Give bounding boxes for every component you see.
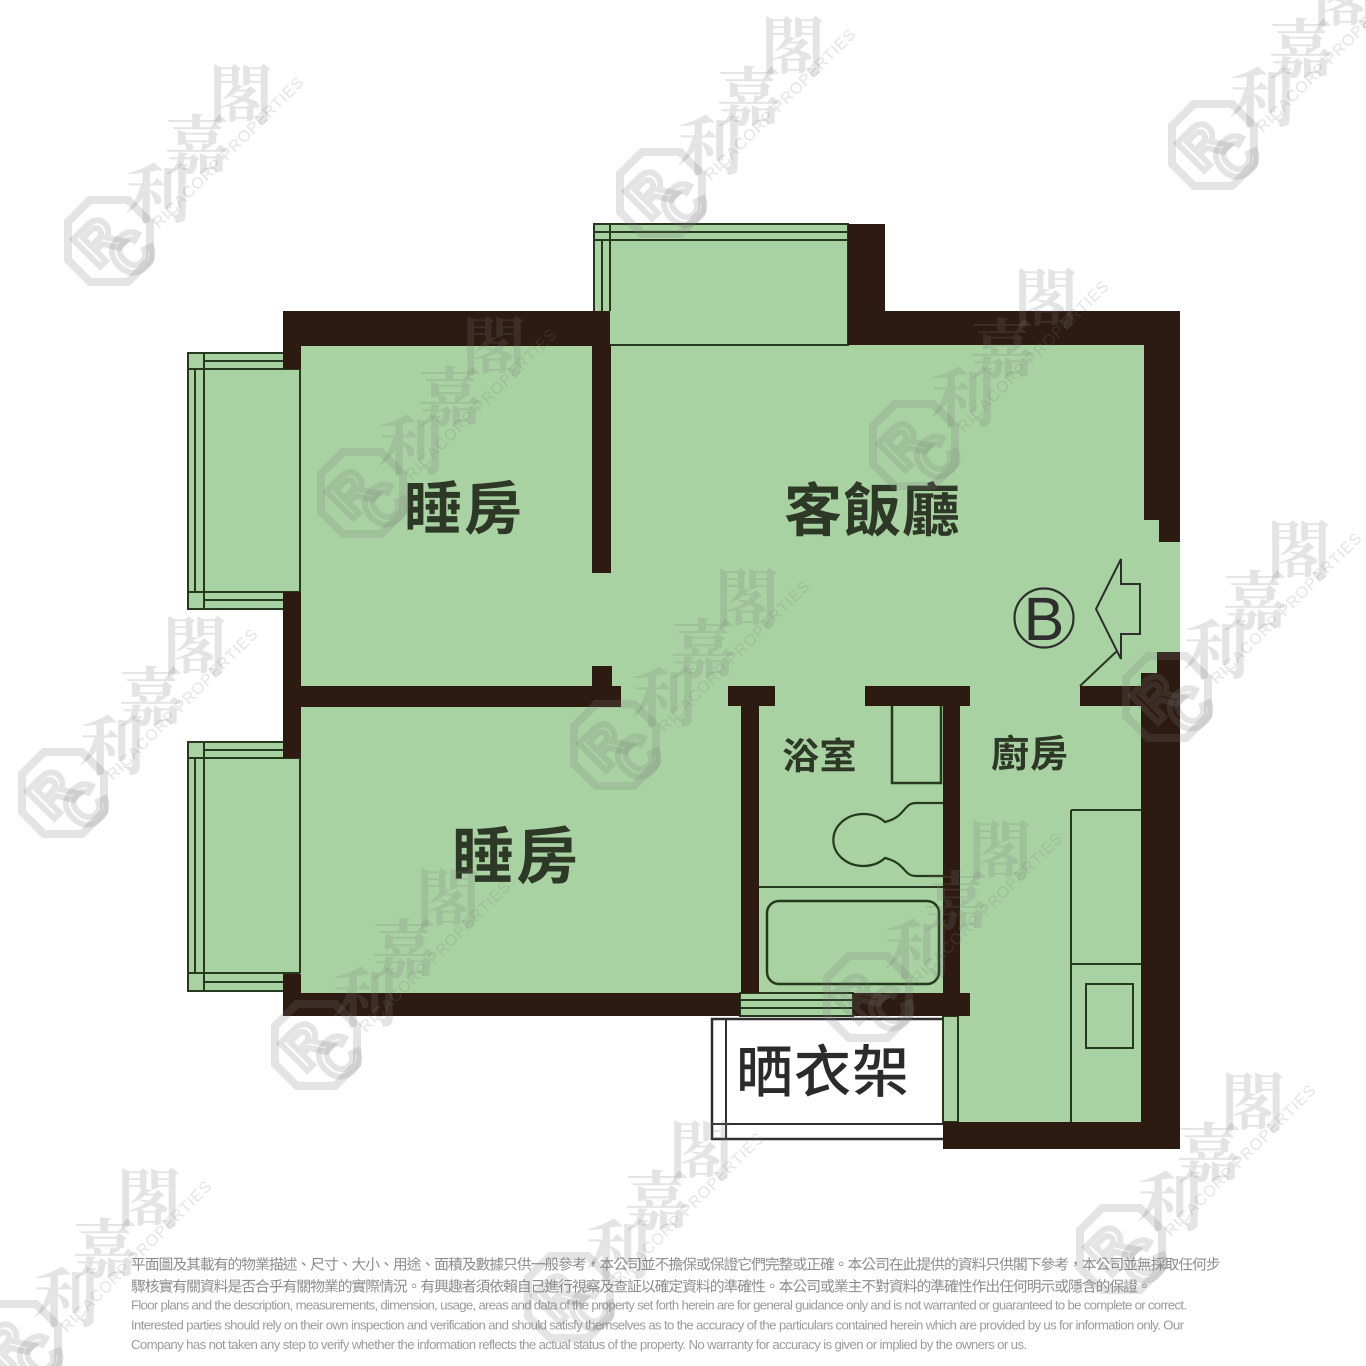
- svg-text:Floor plans and the descriptio: Floor plans and the description, measure…: [131, 1298, 1187, 1313]
- svg-text:Interested parties should rely: Interested parties should rely on their …: [131, 1318, 1185, 1333]
- svg-text:B: B: [1024, 585, 1065, 653]
